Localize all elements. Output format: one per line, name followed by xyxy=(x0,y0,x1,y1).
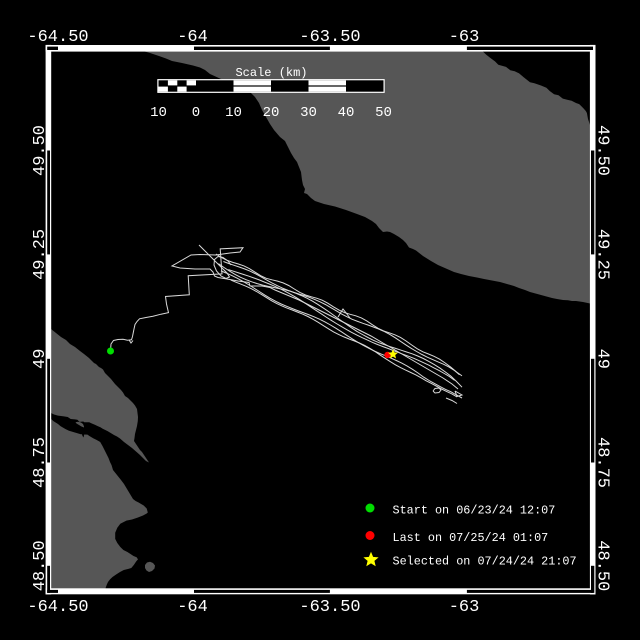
svg-text:Start on 06/23/24 12:07: Start on 06/23/24 12:07 xyxy=(393,504,556,518)
svg-text:-63: -63 xyxy=(449,598,480,617)
svg-text:10: 10 xyxy=(225,105,242,121)
svg-text:Scale (km): Scale (km) xyxy=(235,66,307,80)
svg-text:40: 40 xyxy=(338,105,355,121)
svg-text:50: 50 xyxy=(375,105,392,121)
svg-text:Selected on 07/24/24 21:07: Selected on 07/24/24 21:07 xyxy=(393,555,577,569)
svg-text:10: 10 xyxy=(150,105,167,121)
svg-text:49.50: 49.50 xyxy=(31,125,50,176)
svg-text:49.25: 49.25 xyxy=(593,229,612,280)
svg-text:-63: -63 xyxy=(449,28,480,47)
svg-text:48.50: 48.50 xyxy=(593,540,612,591)
svg-text:Last on 07/25/24 01:07: Last on 07/25/24 01:07 xyxy=(393,531,549,545)
svg-text:48.75: 48.75 xyxy=(31,437,50,488)
svg-text:49: 49 xyxy=(31,349,50,369)
svg-text:48.75: 48.75 xyxy=(593,437,612,488)
svg-text:48.50: 48.50 xyxy=(31,540,50,591)
svg-text:49.50: 49.50 xyxy=(593,125,612,176)
svg-text:-63.50: -63.50 xyxy=(299,598,360,617)
svg-text:-64.50: -64.50 xyxy=(27,598,88,617)
svg-text:49: 49 xyxy=(593,349,612,369)
svg-text:-63.50: -63.50 xyxy=(299,28,360,47)
svg-text:30: 30 xyxy=(300,105,317,121)
svg-text:0: 0 xyxy=(192,105,200,121)
svg-text:49.25: 49.25 xyxy=(31,229,50,280)
svg-text:-64: -64 xyxy=(177,598,208,617)
svg-text:-64.50: -64.50 xyxy=(27,28,88,47)
svg-text:20: 20 xyxy=(263,105,280,121)
svg-text:-64: -64 xyxy=(177,28,208,47)
